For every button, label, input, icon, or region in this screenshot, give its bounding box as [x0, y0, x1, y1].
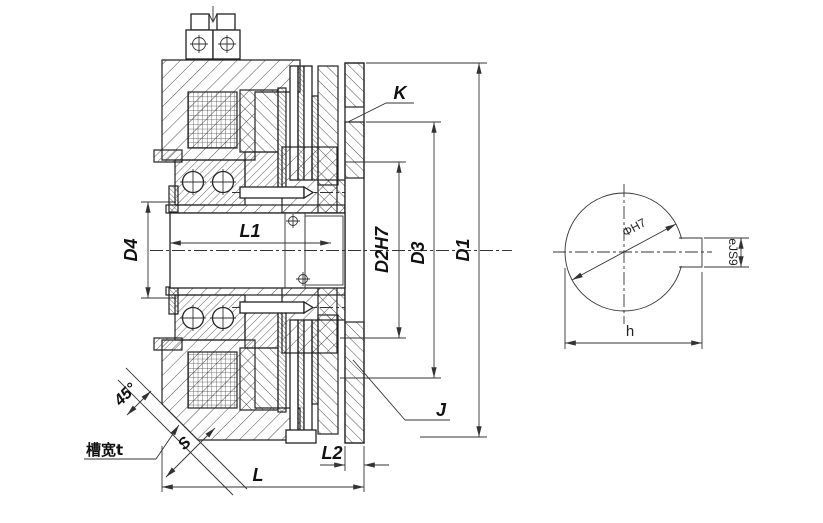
dim-label-d1: D1 — [453, 238, 473, 261]
rotor-web-bottom — [318, 287, 345, 320]
dim-label-d2h7: D2H7 — [372, 226, 392, 273]
main-section-view: L1 D4 D2H7 D3 D1 — [84, 6, 512, 495]
side-view-shaft-bore: ΦH7 eJS9 h — [553, 184, 749, 349]
dimension-shaft-diameter: ΦH7 — [572, 215, 676, 280]
dimension-d4: D4 — [121, 202, 176, 298]
dim-label-ejs9: eJS9 — [726, 238, 740, 266]
dimension-chamfer-angle: 45° — [111, 380, 151, 415]
dim-label-l2: L2 — [321, 443, 342, 463]
dimension-keyway-width: eJS9 — [704, 238, 749, 267]
flange-section — [345, 63, 364, 107]
bolt-shaft — [240, 187, 304, 198]
flange-section — [345, 122, 364, 178]
dim-label-d3: D3 — [408, 241, 428, 264]
coil-winding-top — [188, 92, 237, 148]
dim-label-l: L — [253, 465, 264, 485]
mounting-flange — [345, 63, 364, 443]
dimension-l2: L2 — [320, 443, 389, 492]
dim-label-l1: L1 — [239, 221, 260, 241]
bolt-shaft — [240, 302, 304, 313]
terminal-body-left — [186, 30, 213, 59]
dim-label-j: J — [436, 400, 447, 420]
armature-bottom-outer — [240, 348, 278, 410]
bearing-bottom — [175, 295, 245, 340]
coil-winding-bottom — [188, 352, 237, 408]
armature-bottom-inner — [245, 308, 278, 348]
dim-label-slot-width: 槽宽t — [86, 441, 123, 459]
rotor-web-top — [318, 180, 345, 213]
technical-drawing-page: L1 D4 D2H7 D3 D1 — [0, 0, 823, 518]
callout-slot-width: 槽宽t — [84, 425, 179, 459]
bearing-top — [175, 160, 245, 205]
bearing-cap-top — [154, 150, 182, 162]
dim-label-k: K — [394, 83, 409, 103]
terminal-block — [186, 6, 240, 59]
keyway-mask — [674, 239, 704, 266]
dim-label-h: h — [626, 323, 634, 340]
terminal-cap-right — [217, 14, 235, 30]
dim-label-d4: D4 — [121, 238, 141, 261]
terminal-body-right — [213, 30, 240, 59]
armature-top-inner — [245, 152, 278, 192]
callout-j: J — [353, 360, 450, 420]
drawing-canvas: L1 D4 D2H7 D3 D1 — [0, 0, 823, 518]
armature-top-outer — [240, 90, 278, 152]
terminal-cap-left — [191, 14, 209, 30]
bearing-cap-bottom — [154, 338, 182, 350]
dimension-keyway-span: h — [565, 268, 702, 349]
flange-section — [345, 322, 364, 443]
carrier-foot — [286, 430, 316, 443]
